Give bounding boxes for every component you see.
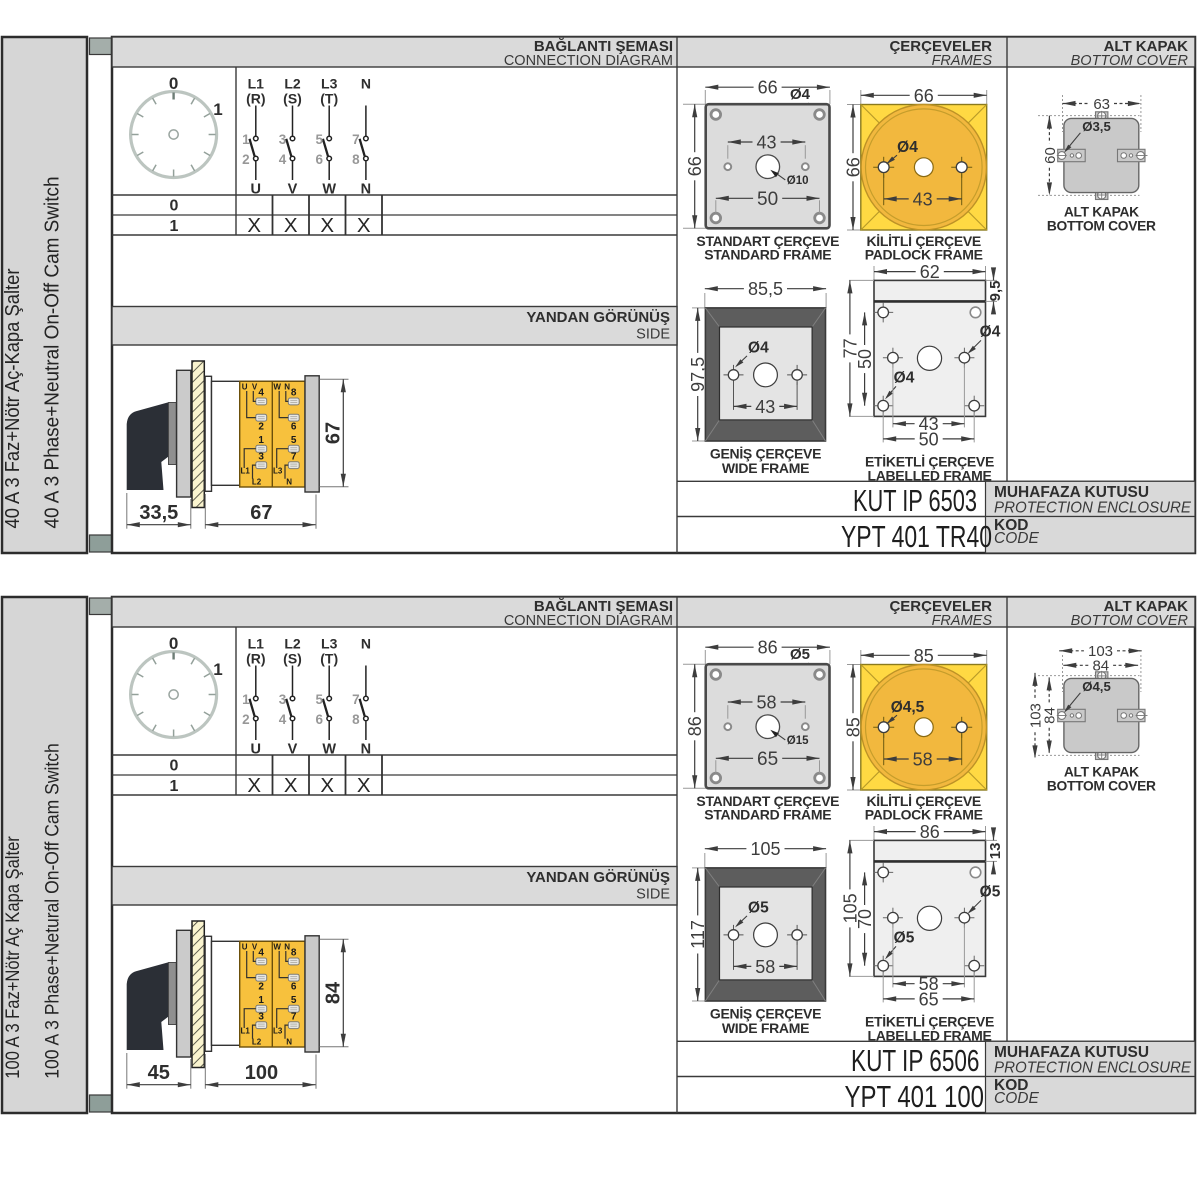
svg-text:1: 1 — [170, 778, 179, 795]
svg-text:(R): (R) — [246, 651, 265, 667]
svg-text:X: X — [320, 774, 334, 797]
svg-text:43: 43 — [913, 189, 933, 209]
svg-text:4: 4 — [279, 152, 287, 167]
svg-text:66: 66 — [758, 78, 778, 98]
svg-text:MUHAFAZA KUTUSU: MUHAFAZA KUTUSU — [994, 1044, 1149, 1061]
svg-text:67: 67 — [250, 502, 272, 524]
svg-text:Ø4: Ø4 — [790, 86, 811, 103]
svg-text:2: 2 — [242, 152, 250, 167]
svg-text:105: 105 — [750, 839, 780, 859]
svg-text:3: 3 — [258, 452, 264, 463]
svg-text:Ø5: Ø5 — [980, 883, 1001, 900]
svg-text:6: 6 — [315, 152, 323, 167]
svg-text:(T): (T) — [320, 651, 338, 667]
svg-text:YPT 401 TR40: YPT 401 TR40 — [841, 519, 992, 554]
svg-text:Ø4: Ø4 — [748, 339, 769, 356]
svg-text:V: V — [252, 943, 258, 952]
svg-text:Ø10: Ø10 — [787, 175, 809, 187]
svg-text:X: X — [320, 214, 334, 237]
svg-text:58: 58 — [913, 749, 933, 769]
svg-text:100 A 3 Faz+Nötr Aç Kapa Şalte: 100 A 3 Faz+Nötr Aç Kapa Şalter — [3, 836, 24, 1079]
svg-text:(R): (R) — [246, 91, 265, 107]
svg-text:62: 62 — [920, 262, 940, 282]
svg-text:13: 13 — [987, 843, 1004, 860]
svg-text:43: 43 — [756, 133, 776, 153]
svg-text:4: 4 — [279, 712, 287, 727]
svg-text:65: 65 — [919, 989, 939, 1009]
svg-text:8: 8 — [352, 152, 360, 167]
svg-text:W: W — [273, 383, 281, 392]
svg-text:STANDARD FRAME: STANDARD FRAME — [704, 807, 831, 823]
svg-text:7: 7 — [291, 452, 297, 463]
svg-text:45: 45 — [148, 1062, 170, 1084]
svg-text:Ø4: Ø4 — [897, 139, 918, 156]
svg-text:X: X — [357, 774, 371, 797]
svg-text:L2: L2 — [284, 636, 301, 652]
svg-text:MUHAFAZA KUTUSU: MUHAFAZA KUTUSU — [994, 484, 1149, 501]
svg-text:0: 0 — [170, 198, 179, 215]
svg-text:L2: L2 — [252, 477, 262, 486]
svg-text:7: 7 — [352, 132, 360, 147]
svg-text:100: 100 — [245, 1062, 278, 1084]
svg-text:U: U — [242, 943, 248, 952]
svg-text:YANDAN GÖRÜNÜŞ: YANDAN GÖRÜNÜŞ — [526, 309, 670, 326]
svg-text:2: 2 — [258, 421, 264, 432]
svg-text:U: U — [242, 383, 248, 392]
svg-text:Ø4: Ø4 — [980, 323, 1001, 340]
svg-text:SIDE: SIDE — [636, 327, 670, 343]
svg-text:U: U — [251, 182, 261, 198]
svg-text:U: U — [251, 742, 261, 758]
svg-text:FRAMES: FRAMES — [932, 53, 993, 69]
svg-text:65: 65 — [757, 749, 778, 770]
svg-text:L3: L3 — [321, 636, 338, 652]
svg-text:33,5: 33,5 — [139, 502, 178, 524]
svg-text:5: 5 — [291, 435, 297, 446]
svg-text:PROTECTION ENCLOSURE: PROTECTION ENCLOSURE — [994, 499, 1192, 516]
svg-text:L3: L3 — [273, 1027, 283, 1036]
svg-text:7: 7 — [352, 692, 360, 707]
svg-text:1: 1 — [258, 995, 264, 1006]
svg-text:(T): (T) — [320, 91, 338, 107]
svg-text:8: 8 — [291, 948, 297, 959]
svg-text:L1: L1 — [241, 467, 251, 476]
svg-text:N: N — [284, 943, 290, 952]
svg-text:BOTTOM COVER: BOTTOM COVER — [1071, 613, 1189, 629]
svg-text:84: 84 — [323, 981, 345, 1004]
svg-text:Ø5: Ø5 — [894, 929, 915, 946]
svg-text:FRAMES: FRAMES — [932, 613, 993, 629]
svg-text:CONNECTION DIAGRAM: CONNECTION DIAGRAM — [504, 53, 673, 69]
svg-text:L1: L1 — [248, 636, 265, 652]
svg-text:4: 4 — [258, 388, 264, 399]
svg-text:(S): (S) — [283, 651, 302, 667]
svg-text:84: 84 — [1042, 707, 1059, 724]
svg-text:85,5: 85,5 — [748, 279, 783, 299]
svg-text:100 A 3 Phase+Netural On-Off C: 100 A 3 Phase+Netural On-Off Cam Switch — [43, 743, 64, 1079]
svg-text:43: 43 — [755, 397, 775, 417]
svg-text:PADLOCK FRAME: PADLOCK FRAME — [865, 807, 983, 823]
svg-text:85: 85 — [914, 646, 934, 666]
svg-text:50: 50 — [855, 349, 875, 369]
svg-text:60: 60 — [1042, 147, 1059, 164]
svg-text:N: N — [286, 477, 292, 486]
svg-text:WIDE FRAME: WIDE FRAME — [722, 1020, 809, 1036]
svg-text:V: V — [252, 383, 258, 392]
svg-text:86: 86 — [920, 822, 940, 842]
svg-text:N: N — [284, 383, 290, 392]
svg-text:70: 70 — [855, 909, 875, 929]
svg-text:V: V — [288, 742, 298, 758]
svg-text:1: 1 — [213, 660, 222, 679]
svg-text:5: 5 — [315, 692, 323, 707]
svg-text:X: X — [247, 774, 261, 797]
svg-text:N: N — [361, 636, 371, 652]
svg-text:V: V — [288, 182, 298, 198]
svg-text:KUT IP 6503: KUT IP 6503 — [853, 483, 977, 518]
svg-text:L3: L3 — [321, 76, 338, 92]
svg-text:2: 2 — [258, 981, 264, 992]
svg-text:BOTTOM COVER: BOTTOM COVER — [1047, 779, 1156, 794]
svg-text:Ø5: Ø5 — [748, 899, 769, 916]
svg-text:1: 1 — [242, 132, 250, 147]
svg-text:BOTTOM COVER: BOTTOM COVER — [1071, 53, 1189, 69]
svg-text:6: 6 — [315, 712, 323, 727]
svg-text:1: 1 — [170, 218, 179, 235]
svg-text:Ø4,5: Ø4,5 — [891, 699, 925, 716]
svg-text:1: 1 — [213, 100, 222, 119]
svg-text:9,5: 9,5 — [987, 280, 1004, 301]
svg-text:0: 0 — [170, 758, 179, 775]
svg-text:N: N — [361, 742, 371, 758]
svg-text:2: 2 — [242, 712, 250, 727]
svg-text:6: 6 — [291, 981, 297, 992]
svg-text:Ø5: Ø5 — [790, 646, 810, 663]
svg-text:Ø15: Ø15 — [787, 735, 809, 747]
svg-text:50: 50 — [757, 189, 778, 210]
svg-text:7: 7 — [291, 1012, 297, 1023]
svg-text:0: 0 — [169, 74, 178, 93]
svg-text:N: N — [361, 182, 371, 198]
svg-text:66: 66 — [685, 156, 705, 176]
svg-text:W: W — [273, 943, 281, 952]
svg-text:8: 8 — [352, 712, 360, 727]
svg-text:(S): (S) — [283, 91, 302, 107]
svg-text:86: 86 — [758, 638, 778, 658]
svg-text:W: W — [322, 742, 336, 758]
svg-text:8: 8 — [291, 388, 297, 399]
svg-text:X: X — [284, 214, 298, 237]
svg-text:STANDARD FRAME: STANDARD FRAME — [704, 247, 831, 263]
svg-text:67: 67 — [323, 422, 345, 444]
svg-text:50: 50 — [919, 429, 939, 449]
svg-text:KUT IP 6506: KUT IP 6506 — [851, 1043, 980, 1078]
svg-text:40 A 3 Faz+Nötr Aç-Kapa Şalter: 40 A 3 Faz+Nötr Aç-Kapa Şalter — [2, 268, 24, 528]
svg-text:L3: L3 — [273, 467, 283, 476]
svg-text:1: 1 — [258, 435, 264, 446]
svg-text:CODE: CODE — [994, 1090, 1039, 1107]
svg-text:Ø4: Ø4 — [894, 369, 915, 386]
svg-text:ALT KAPAK: ALT KAPAK — [1064, 205, 1139, 220]
svg-text:N: N — [286, 1037, 292, 1046]
svg-text:W: W — [322, 182, 336, 198]
svg-text:X: X — [284, 774, 298, 797]
svg-text:66: 66 — [914, 86, 934, 106]
svg-text:L1: L1 — [248, 76, 265, 92]
svg-text:ALT KAPAK: ALT KAPAK — [1064, 765, 1139, 780]
svg-text:BOTTOM COVER: BOTTOM COVER — [1047, 219, 1156, 234]
svg-text:0: 0 — [169, 634, 178, 653]
svg-text:L2: L2 — [252, 1037, 262, 1046]
svg-text:Ø3,5: Ø3,5 — [1082, 119, 1111, 134]
svg-text:L1: L1 — [241, 1027, 251, 1036]
svg-text:3: 3 — [258, 1012, 264, 1023]
svg-text:YPT 401 100: YPT 401 100 — [845, 1079, 985, 1114]
svg-text:58: 58 — [756, 693, 776, 713]
svg-text:6: 6 — [291, 421, 297, 432]
svg-text:3: 3 — [279, 132, 287, 147]
svg-text:PADLOCK FRAME: PADLOCK FRAME — [865, 247, 983, 263]
svg-text:Ø4,5: Ø4,5 — [1082, 679, 1111, 694]
svg-text:3: 3 — [279, 692, 287, 707]
svg-text:CODE: CODE — [994, 530, 1039, 547]
svg-text:N: N — [361, 76, 371, 92]
svg-text:5: 5 — [315, 132, 323, 147]
svg-text:CONNECTION DIAGRAM: CONNECTION DIAGRAM — [504, 613, 673, 629]
svg-text:PROTECTION ENCLOSURE: PROTECTION ENCLOSURE — [994, 1059, 1192, 1076]
svg-text:YANDAN GÖRÜNÜŞ: YANDAN GÖRÜNÜŞ — [526, 869, 670, 886]
svg-text:63: 63 — [1093, 96, 1110, 113]
svg-text:L2: L2 — [284, 76, 301, 92]
svg-text:5: 5 — [291, 995, 297, 1006]
svg-text:40 A 3 Phase+Neutral On-Off Ca: 40 A 3 Phase+Neutral On-Off Cam Switch — [42, 177, 64, 529]
svg-text:X: X — [247, 214, 261, 237]
svg-text:SIDE: SIDE — [636, 887, 670, 903]
svg-text:86: 86 — [685, 716, 705, 736]
svg-text:X: X — [357, 214, 371, 237]
svg-text:58: 58 — [755, 957, 775, 977]
svg-text:1: 1 — [242, 692, 250, 707]
svg-text:WIDE FRAME: WIDE FRAME — [722, 460, 809, 476]
svg-text:4: 4 — [258, 948, 264, 959]
